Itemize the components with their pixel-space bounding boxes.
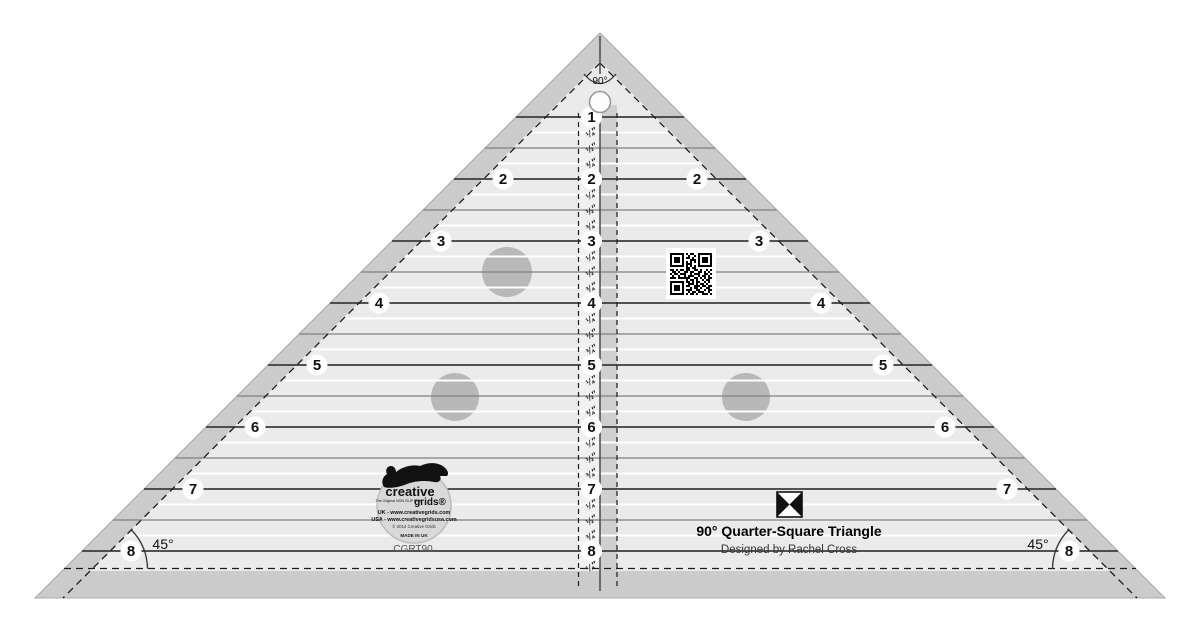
qr-code: [666, 248, 716, 299]
left-edge-scale-number: 3: [431, 231, 452, 252]
svg-text:6: 6: [587, 419, 595, 436]
apex-angle-label: 90°: [592, 76, 607, 87]
hanging-hole-circle: [590, 92, 611, 113]
right-edge-scale-number: 3: [749, 231, 770, 252]
logo-line-uk: UK - www.creativegrids.com: [378, 510, 451, 516]
svg-text:2: 2: [693, 171, 701, 188]
logo-line-made: MADE IN UK: [400, 533, 428, 538]
svg-text:8: 8: [127, 543, 135, 560]
right-edge-scale-number: 2: [687, 169, 708, 190]
model-number: CGRT90: [393, 544, 433, 555]
right-edge-scale-number: 5: [873, 355, 894, 376]
svg-text:7: 7: [587, 481, 595, 498]
center-scale-number: 4: [581, 293, 602, 314]
svg-text:4: 4: [375, 295, 384, 312]
svg-text:8: 8: [1065, 543, 1073, 560]
svg-text:3: 3: [587, 233, 595, 250]
svg-text:4: 4: [587, 295, 596, 312]
product-image-canvas: 90° 45° 45° 1234567822334455667788¼″½″¾″…: [0, 0, 1200, 643]
right-edge-scale-number: 7: [997, 479, 1018, 500]
left-edge-scale-number: 2: [493, 169, 514, 190]
svg-text:3: 3: [437, 233, 445, 250]
svg-text:7: 7: [1003, 481, 1011, 498]
left-edge-scale-number: 8: [121, 541, 142, 562]
hanging-hole: [590, 92, 611, 113]
left-edge-scale-number: 5: [307, 355, 328, 376]
svg-text:2: 2: [499, 171, 507, 188]
right-45-label: 45°: [1027, 536, 1048, 552]
svg-text:5: 5: [587, 357, 595, 374]
left-edge-scale-number: 4: [369, 293, 390, 314]
quarter-square-block-icon: [777, 492, 802, 517]
logo-line-copyright: © 2014 Creative Grids: [392, 524, 436, 529]
svg-text:7: 7: [189, 481, 197, 498]
right-edge-scale-number: 4: [811, 293, 832, 314]
left-45-label: 45°: [152, 536, 173, 552]
svg-text:8: 8: [587, 543, 595, 560]
svg-text:5: 5: [313, 357, 321, 374]
svg-text:6: 6: [941, 419, 949, 436]
left-edge-scale-number: 6: [245, 417, 266, 438]
center-scale-number: 2: [581, 169, 602, 190]
logo-brand-bottom: grids®: [414, 497, 446, 508]
product-title: 90° Quarter-Square Triangle: [696, 523, 882, 539]
svg-text:6: 6: [251, 419, 259, 436]
svg-text:3: 3: [755, 233, 763, 250]
center-scale-number: 5: [581, 355, 602, 376]
center-scale-number: 7: [581, 479, 602, 500]
center-strip-gray-column: [600, 105, 618, 571]
right-edge-scale-number: 6: [935, 417, 956, 438]
svg-text:5: 5: [879, 357, 887, 374]
left-edge-scale-number: 7: [183, 479, 204, 500]
ruler-graphic: 90° 45° 45° 1234567822334455667788¼″½″¾″…: [0, 0, 1200, 643]
center-scale-number: 3: [581, 231, 602, 252]
svg-text:4: 4: [817, 295, 826, 312]
center-scale-number: 8: [581, 541, 602, 562]
center-scale-number: 6: [581, 417, 602, 438]
right-edge-scale-number: 8: [1059, 541, 1080, 562]
product-subtitle: Designed by Rachel Cross: [721, 544, 857, 556]
svg-text:2: 2: [587, 171, 595, 188]
logo-line-usa: USA - www.creativegridsusa.com: [371, 517, 456, 523]
